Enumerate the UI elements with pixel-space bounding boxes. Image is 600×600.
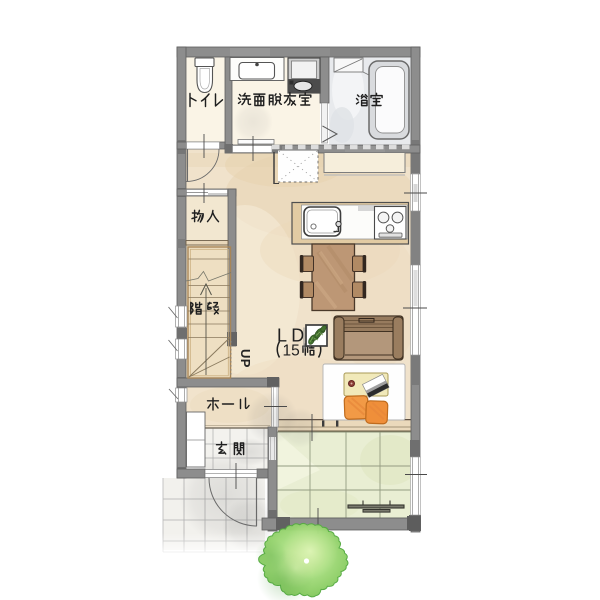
svg-text:15: 15 <box>283 343 300 360</box>
svg-text:UP: UP <box>238 349 253 368</box>
